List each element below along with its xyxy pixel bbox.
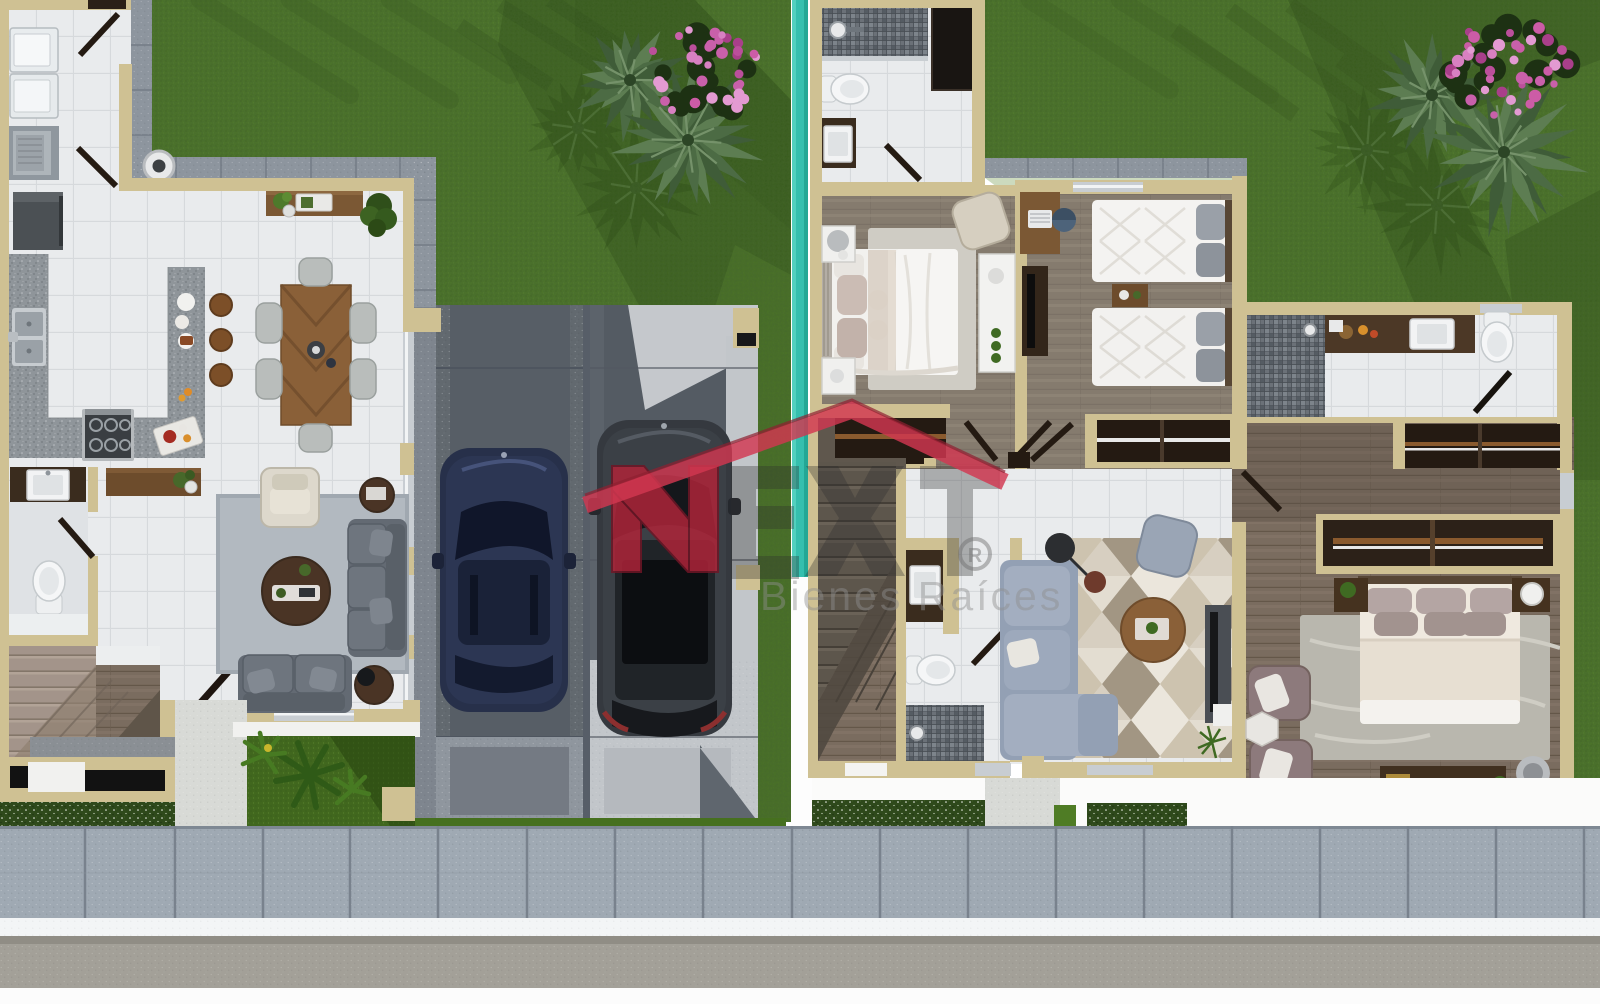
svg-text:R: R [968,545,983,567]
svg-text:Bienes Raíces: Bienes Raíces [760,573,1063,619]
